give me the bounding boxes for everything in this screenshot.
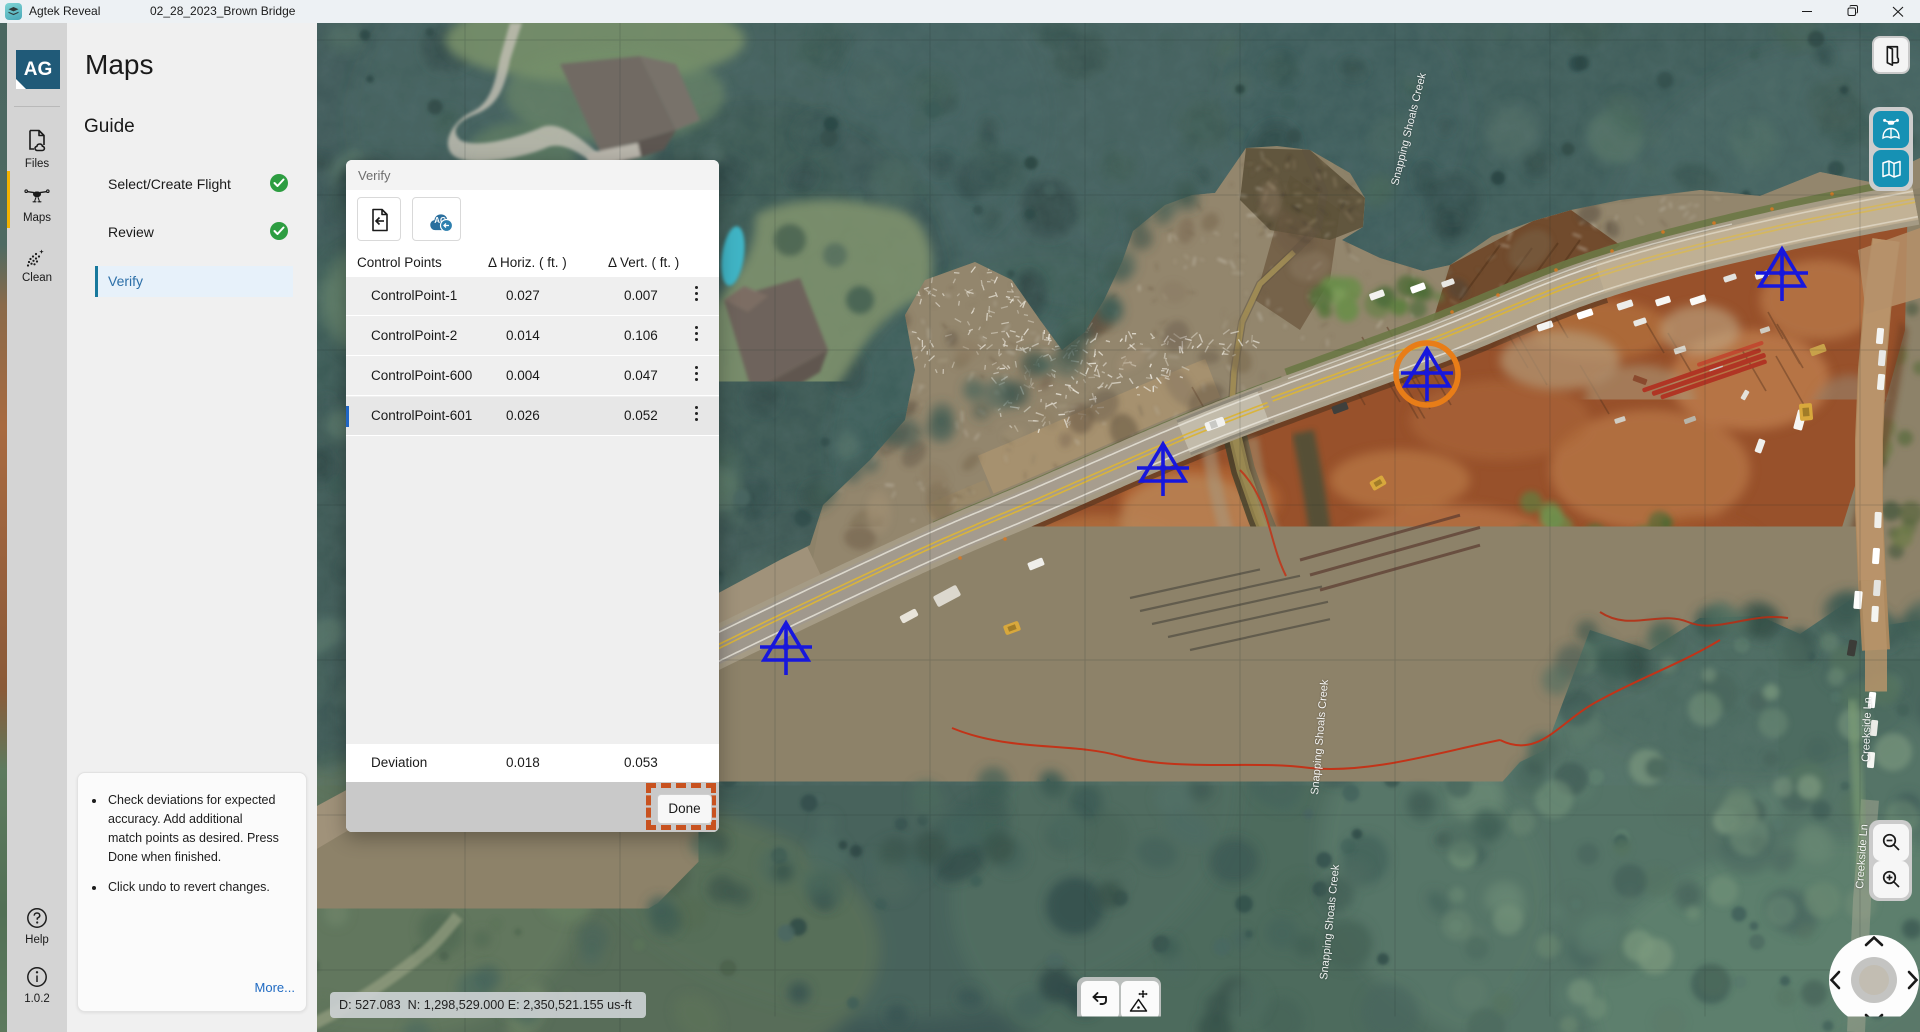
svg-text:Creekside Ln: Creekside Ln	[1860, 697, 1874, 762]
